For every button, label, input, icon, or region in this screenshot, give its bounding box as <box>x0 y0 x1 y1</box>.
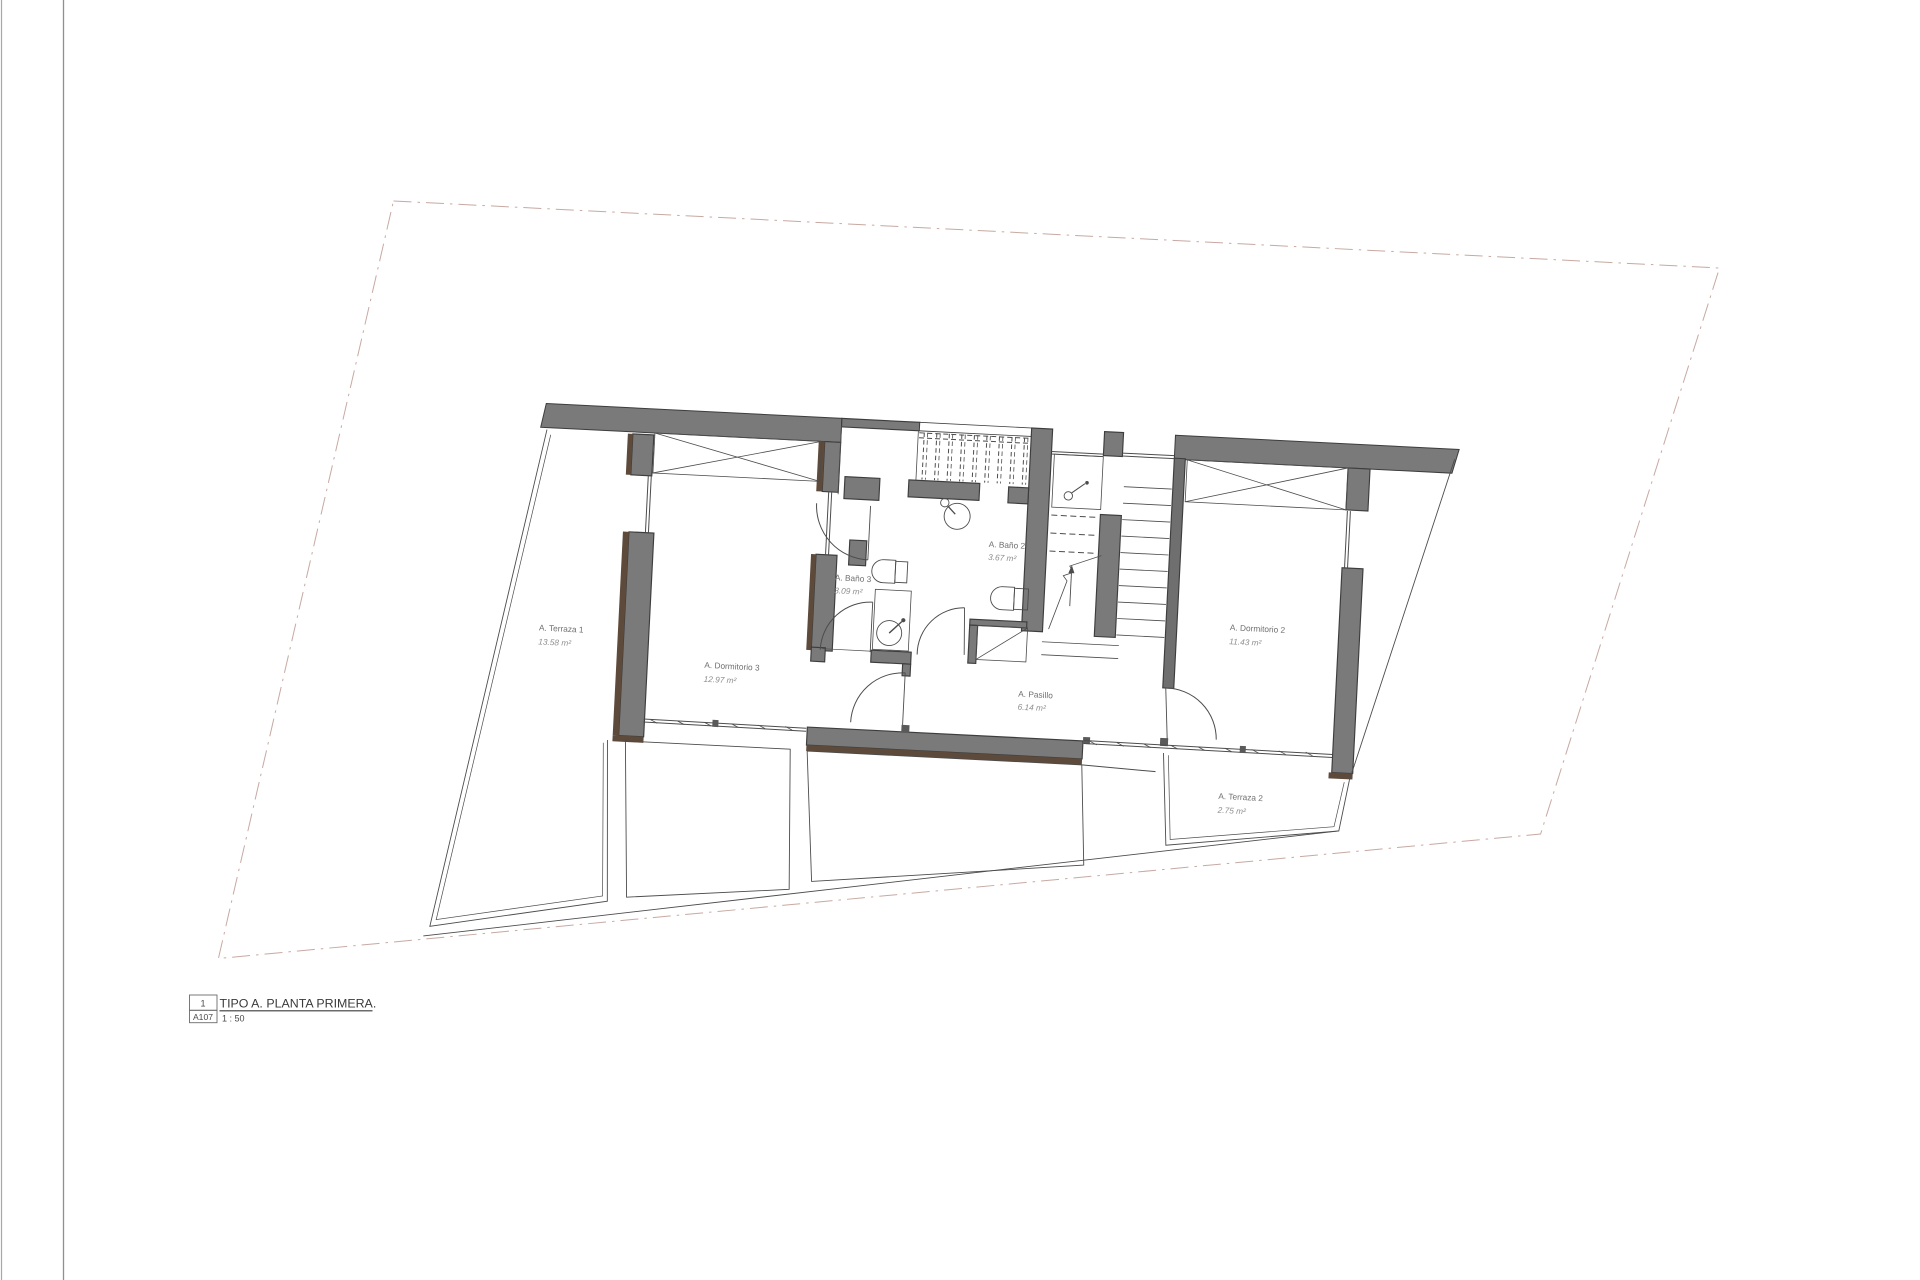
svg-text:A. Baño 3: A. Baño 3 <box>835 572 872 584</box>
svg-text:A107: A107 <box>193 1012 213 1022</box>
svg-text:A. Baño 2: A. Baño 2 <box>989 539 1026 551</box>
svg-text:1 : 50: 1 : 50 <box>222 1014 245 1024</box>
svg-text:6.14 m²: 6.14 m² <box>1017 702 1046 713</box>
svg-text:3.09 m²: 3.09 m² <box>834 585 863 596</box>
svg-text:TIPO A. PLANTA PRIMERA.: TIPO A. PLANTA PRIMERA. <box>220 997 377 1011</box>
svg-text:13.58 m²: 13.58 m² <box>538 636 571 648</box>
svg-text:11.43 m²: 11.43 m² <box>1229 636 1262 648</box>
svg-text:1: 1 <box>200 999 205 1009</box>
svg-text:12.97 m²: 12.97 m² <box>703 674 736 686</box>
svg-text:3.67 m²: 3.67 m² <box>988 552 1017 563</box>
svg-text:2.75 m²: 2.75 m² <box>1216 805 1246 816</box>
svg-text:A. Pasillo: A. Pasillo <box>1018 689 1053 701</box>
